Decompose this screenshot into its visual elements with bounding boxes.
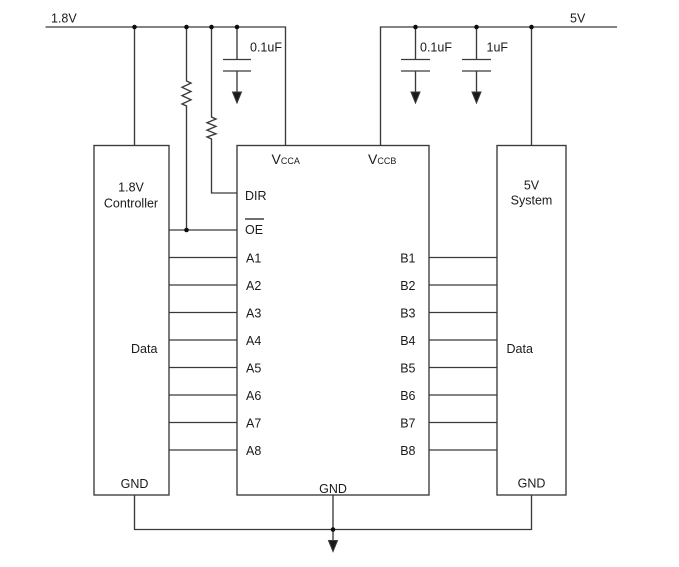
svg-text:VCCB: VCCB bbox=[368, 151, 396, 167]
svg-text:B8: B8 bbox=[400, 444, 415, 458]
svg-text:A8: A8 bbox=[246, 444, 261, 458]
svg-text:DIR: DIR bbox=[245, 189, 267, 203]
svg-text:0.1uF: 0.1uF bbox=[420, 41, 452, 55]
svg-text:Controller: Controller bbox=[104, 197, 158, 211]
svg-text:VCCA: VCCA bbox=[272, 151, 300, 167]
svg-text:OE: OE bbox=[245, 223, 263, 237]
svg-text:5V: 5V bbox=[570, 12, 586, 26]
svg-text:B4: B4 bbox=[400, 334, 415, 348]
svg-text:1.8V: 1.8V bbox=[51, 12, 77, 26]
svg-text:1.8V: 1.8V bbox=[118, 181, 144, 195]
svg-text:A5: A5 bbox=[246, 362, 261, 376]
svg-text:1uF: 1uF bbox=[487, 41, 509, 55]
svg-text:B1: B1 bbox=[400, 252, 415, 266]
svg-text:B5: B5 bbox=[400, 362, 415, 376]
svg-text:B3: B3 bbox=[400, 307, 415, 321]
svg-text:A2: A2 bbox=[246, 279, 261, 293]
svg-text:A4: A4 bbox=[246, 334, 261, 348]
svg-text:B2: B2 bbox=[400, 279, 415, 293]
svg-text:A3: A3 bbox=[246, 307, 261, 321]
svg-text:B6: B6 bbox=[400, 389, 415, 403]
svg-text:GND: GND bbox=[518, 477, 546, 491]
svg-text:GND: GND bbox=[121, 477, 149, 491]
svg-text:B7: B7 bbox=[400, 417, 415, 431]
svg-text:A6: A6 bbox=[246, 389, 261, 403]
svg-text:A1: A1 bbox=[246, 252, 261, 266]
svg-text:A7: A7 bbox=[246, 417, 261, 431]
svg-text:5V: 5V bbox=[524, 179, 540, 193]
svg-text:GND: GND bbox=[319, 482, 347, 496]
svg-text:Data: Data bbox=[131, 342, 157, 356]
svg-text:System: System bbox=[511, 194, 553, 208]
svg-text:Data: Data bbox=[507, 342, 533, 356]
svg-text:0.1uF: 0.1uF bbox=[250, 41, 282, 55]
